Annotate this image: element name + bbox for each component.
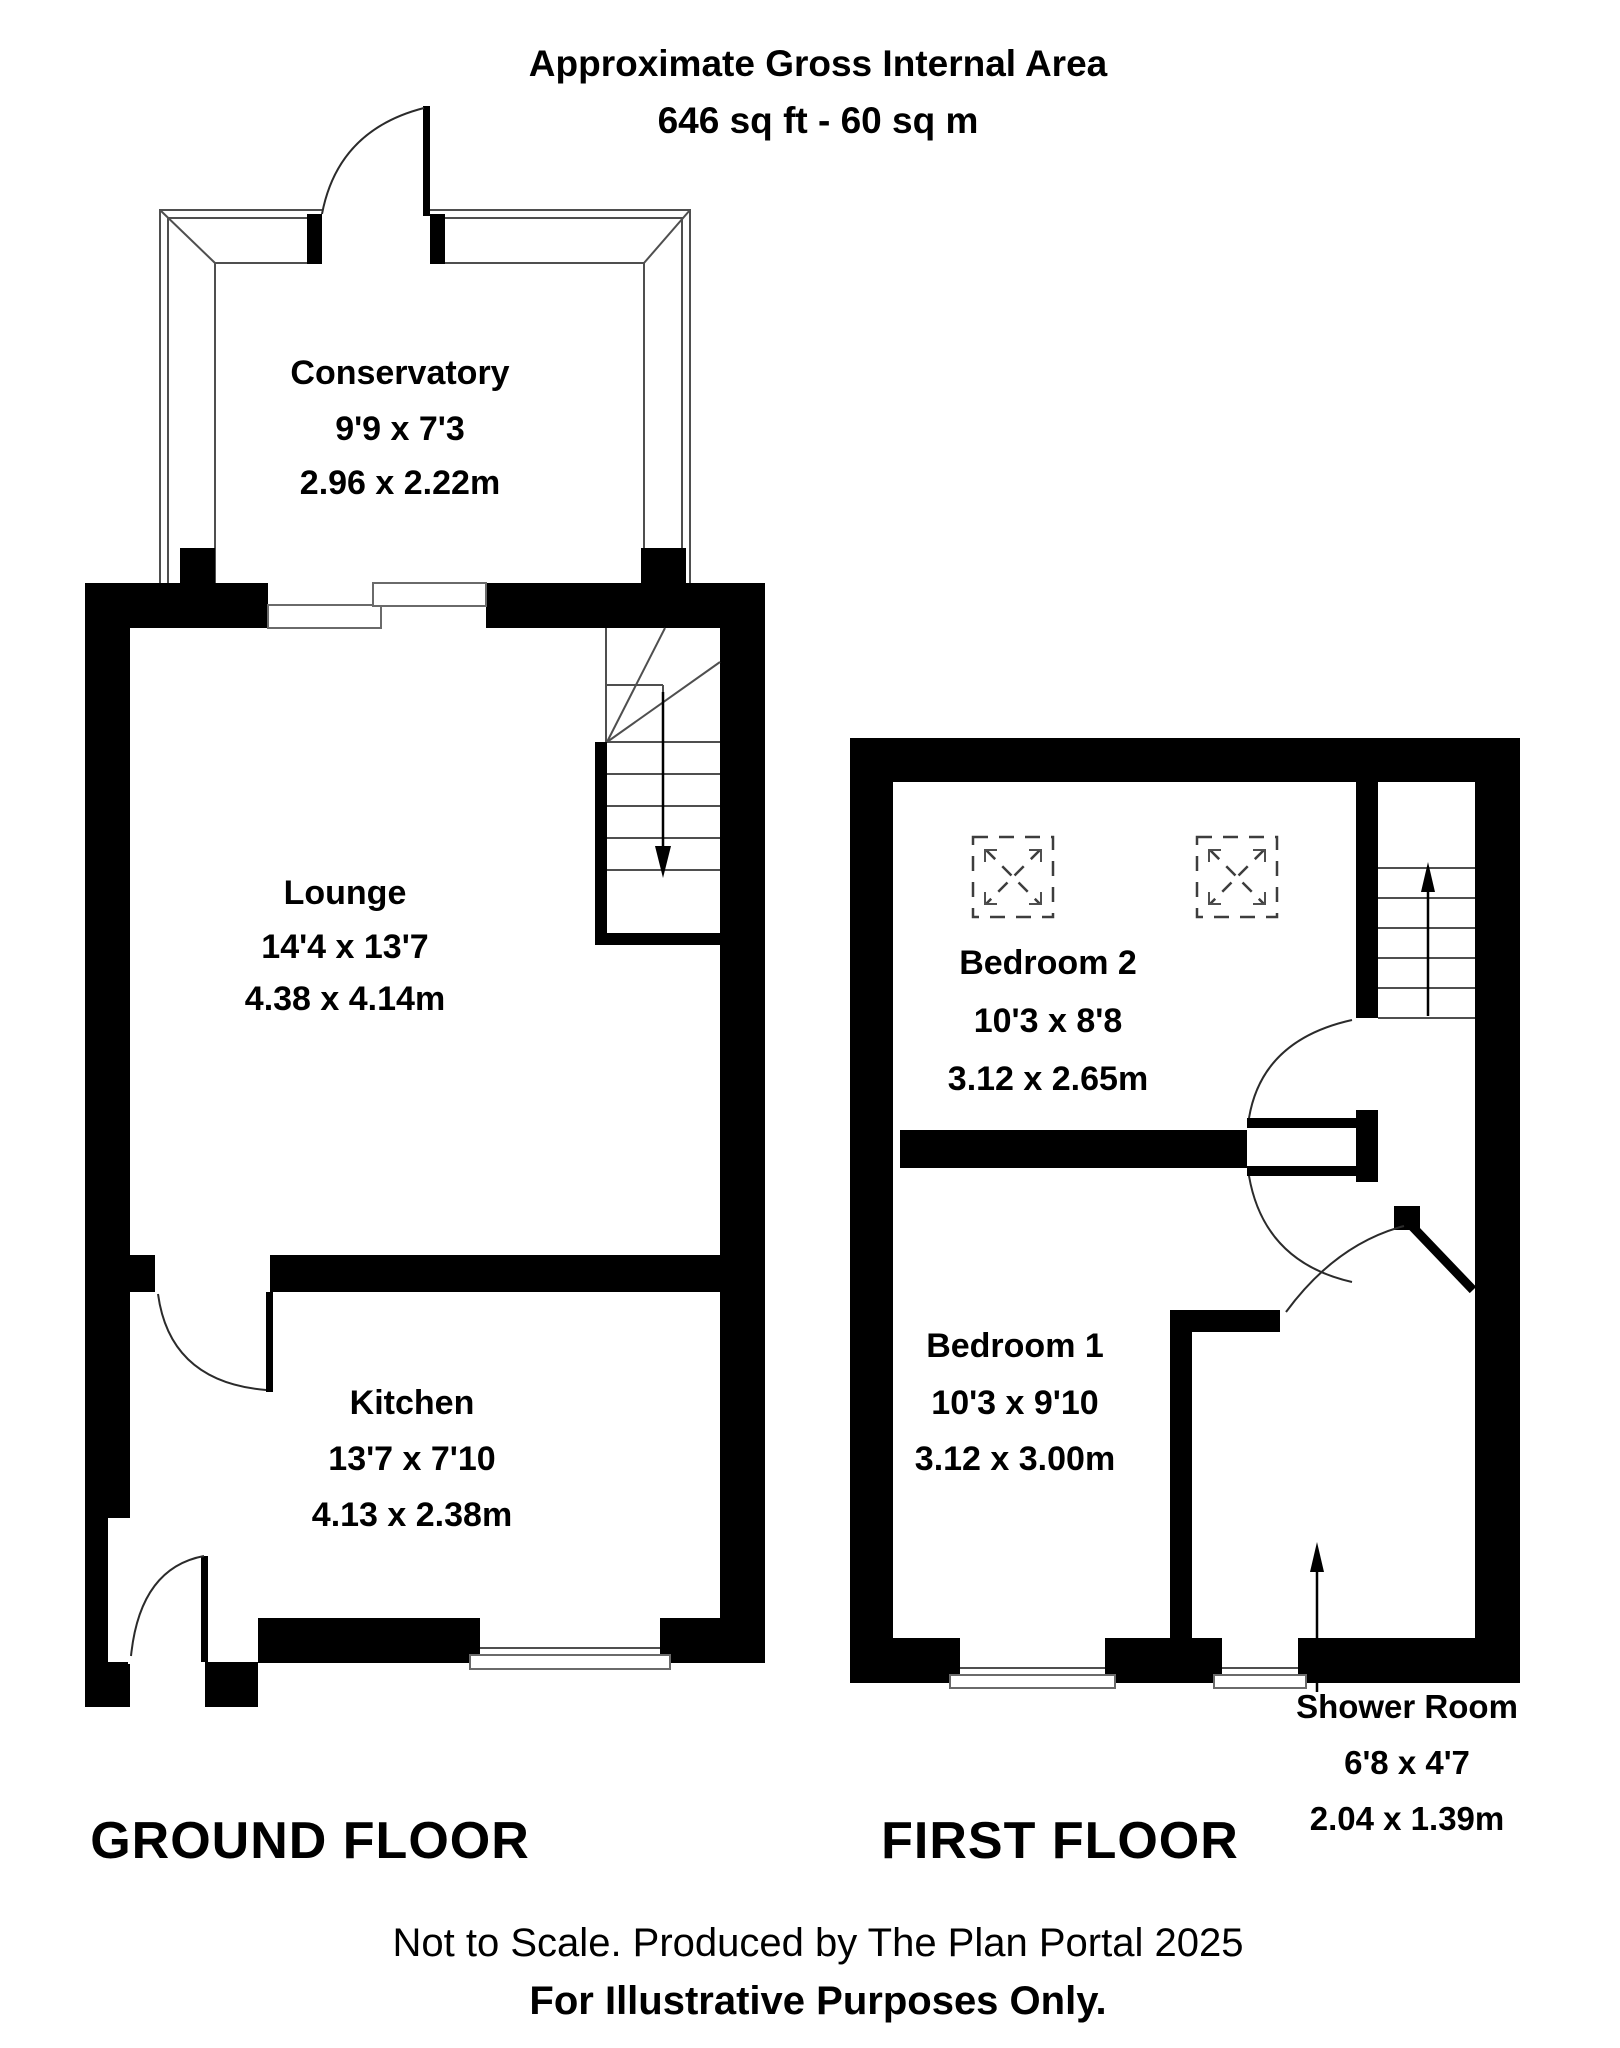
stairs-ground-floor	[595, 628, 720, 945]
room-dims-imperial-lounge: 14'4 x 13'7	[261, 928, 428, 966]
landing-door-post	[1356, 1110, 1378, 1182]
divider-wall-left-stub	[130, 1255, 155, 1292]
ground-floor-label: GROUND FLOOR	[90, 1812, 530, 1870]
wall-left	[850, 738, 893, 1683]
skylight-right	[1197, 837, 1277, 917]
room-dims-metric-conservatory: 2.96 x 2.22m	[300, 464, 500, 502]
kitchen-door-leaf	[266, 1292, 273, 1392]
conservatory-wall-stub-right	[641, 548, 686, 584]
shower-window-sill	[1214, 1675, 1306, 1688]
stairs-first-floor	[1356, 782, 1475, 1018]
conservatory-door-leaf	[423, 106, 430, 216]
shower-door-swing-arc	[1286, 1226, 1404, 1312]
floorplan-drawing: Approximate Gross Internal Area 646 sq f…	[0, 0, 1620, 2048]
bedroom1-door-swing-arc	[1249, 1176, 1352, 1282]
room-dims-metric-bedroom1: 3.12 x 3.00m	[915, 1440, 1115, 1478]
bedroom1-window-sill	[950, 1675, 1115, 1688]
room-dims-metric-shower: 2.04 x 1.39m	[1310, 1800, 1505, 1837]
room-label-conservatory: Conservatory	[290, 354, 509, 392]
bedroom1-door-leaf	[1247, 1166, 1356, 1176]
footer-illustrative-note: For Illustrative Purposes Only.	[529, 1979, 1106, 2023]
wall-right	[720, 583, 765, 1663]
ground-floor-plan: Lounge 14'4 x 13'7 4.38 x 4.14m Kitchen …	[85, 583, 765, 1707]
stairwell-divider-wall	[1356, 782, 1378, 1018]
room-dims-metric-kitchen: 4.13 x 2.38m	[312, 1496, 512, 1534]
sliding-patio-door-panel-inner	[268, 605, 381, 628]
room-dims-imperial-kitchen: 13'7 x 7'10	[328, 1440, 495, 1478]
shower-door-leaf	[1408, 1222, 1473, 1290]
kitchen-window-sill	[470, 1655, 670, 1669]
kitchen-door-swing-arc	[158, 1294, 266, 1390]
conservatory-wall-stub-left	[180, 548, 215, 584]
room-label-lounge: Lounge	[284, 874, 407, 912]
room-dims-metric-bedroom2: 3.12 x 2.65m	[948, 1060, 1148, 1098]
wall-right	[1475, 738, 1520, 1683]
wall-top	[850, 738, 1520, 782]
skylight-left	[973, 837, 1053, 917]
room-label-shower: Shower Room	[1296, 1688, 1518, 1725]
room-dims-metric-lounge: 4.38 x 4.14m	[245, 980, 445, 1018]
room-dims-imperial-conservatory: 9'9 x 7'3	[335, 410, 465, 448]
divider-wall-main	[270, 1255, 720, 1292]
title-area-heading: Approximate Gross Internal Area	[529, 43, 1108, 84]
room-dims-imperial-bedroom1: 10'3 x 9'10	[931, 1384, 1098, 1422]
back-door-reveal	[108, 1518, 130, 1664]
conservatory-door-swing-arc	[322, 108, 424, 214]
footer-disclaimer: Not to Scale. Produced by The Plan Porta…	[393, 1921, 1244, 1965]
stairs-up-arrow-icon	[1421, 862, 1435, 892]
bedroom2-door-swing-arc	[1249, 1020, 1352, 1118]
conservatory-glazed-wall-outer	[160, 210, 690, 583]
sliding-patio-door-panel-outer	[373, 583, 486, 606]
first-floor-plan: Bedroom 2 10'3 x 8'8 3.12 x 2.65m Bedroo…	[850, 738, 1520, 1837]
shower-wall-top	[1170, 1310, 1280, 1332]
first-floor-label: FIRST FLOOR	[881, 1812, 1239, 1870]
stairwell-wall-left	[595, 742, 607, 945]
conservatory-door-opening	[322, 200, 430, 264]
stairs-down-arrow-icon	[655, 846, 671, 878]
wall-bottom-door-block	[205, 1662, 258, 1707]
room-label-bedroom1: Bedroom 1	[926, 1327, 1104, 1365]
room-dims-imperial-bedroom2: 10'3 x 8'8	[974, 1002, 1123, 1040]
title-area-value: 646 sq ft - 60 sq m	[658, 100, 979, 141]
room-dims-imperial-shower: 6'8 x 4'7	[1344, 1744, 1470, 1781]
stairwell-wall-bottom	[595, 933, 720, 945]
bedroom2-door-leaf	[1247, 1118, 1356, 1128]
conservatory: Conservatory 9'9 x 7'3 2.96 x 2.22m	[160, 106, 690, 584]
back-door-leaf	[201, 1556, 208, 1662]
back-door-swing-arc	[131, 1556, 204, 1656]
room-label-bedroom2: Bedroom 2	[959, 944, 1137, 982]
wall-bottom-left-corner	[85, 1662, 128, 1707]
conservatory-door-jamb-right	[430, 214, 445, 264]
conservatory-glazed-wall-outer2	[168, 218, 682, 583]
shower-wall-left	[1170, 1310, 1192, 1638]
bedroom-divider-wall	[900, 1130, 1247, 1168]
shower-label-pointer-arrow-icon	[1310, 1542, 1324, 1572]
room-label-kitchen: Kitchen	[350, 1384, 475, 1422]
floorplan-page: Approximate Gross Internal Area 646 sq f…	[0, 0, 1620, 2048]
conservatory-door-jamb-left	[307, 214, 322, 264]
